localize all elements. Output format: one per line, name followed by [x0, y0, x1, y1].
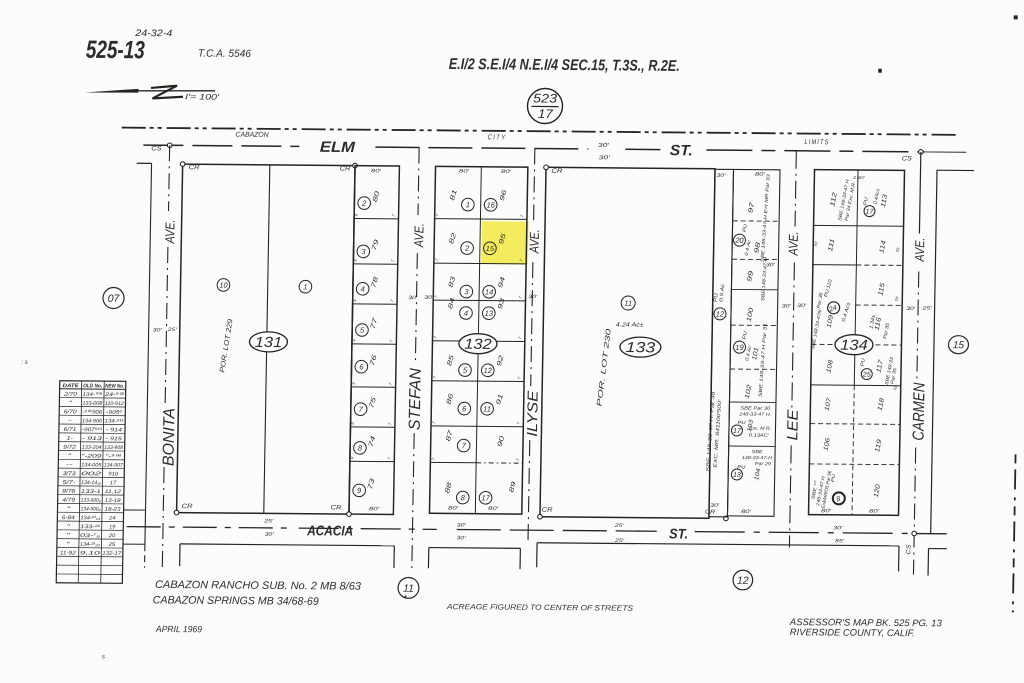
svg-text:107: 107	[824, 397, 833, 411]
svg-text:134-14₁₆: 134-14₁₆	[81, 480, 102, 486]
svg-text:PU: PU	[741, 330, 749, 340]
svg-text:134-907: 134-907	[104, 463, 124, 469]
svg-text:523: 523	[533, 91, 557, 105]
svg-text:525-13: 525-13	[86, 36, 146, 65]
svg-text:7: 7	[391, 213, 397, 217]
svg-text:CR: CR	[551, 168, 562, 175]
svg-text:132: 132	[464, 337, 492, 353]
svg-text:11,12: 11,12	[105, 489, 121, 495]
svg-text:0.4 Ac±: 0.4 Ac±	[841, 301, 852, 322]
svg-text:80′: 80′	[488, 506, 500, 512]
svg-text:″: ″	[67, 524, 72, 530]
svg-text:81: 81	[449, 188, 459, 201]
svg-text:148-33-47 H.: 148-33-47 H.	[739, 411, 771, 416]
svg-text:78: 78	[370, 276, 380, 289]
svg-text:8/78: 8/78	[62, 489, 75, 495]
svg-text:CR: CR	[705, 510, 716, 516]
svg-text:134-⁹¹¹: 134-⁹¹¹	[104, 418, 123, 424]
svg-text:2/70: 2/70	[63, 392, 77, 398]
svg-text:87: 87	[445, 429, 455, 442]
svg-text:80′: 80′	[755, 172, 767, 178]
svg-text:106: 106	[823, 437, 832, 451]
svg-text:ACREAGE FIGURED TO CENTER: ACREAGE FIGURED TO CENTER OF STREETS	[446, 602, 633, 613]
svg-text:86: 86	[445, 392, 455, 405]
svg-text:25′: 25′	[613, 523, 625, 529]
svg-text:80′: 80′	[369, 506, 381, 512]
svg-text:25′: 25′	[166, 327, 178, 333]
svg-text:ST.: ST.	[669, 525, 688, 541]
svg-text:93: 93	[497, 297, 507, 310]
svg-text:CITY: CITY	[487, 134, 506, 141]
svg-text:114: 114	[879, 239, 888, 254]
svg-text:96: 96	[499, 189, 509, 202]
svg-text:SBE 148-33-47-H E×t MR Par: SBE 148-33-47-H E×t MR Par 33	[760, 173, 771, 262]
svg-text:132-17: 132-17	[102, 551, 122, 557]
svg-text:24: 24	[108, 516, 116, 522]
svg-text:4: 4	[361, 284, 365, 293]
svg-text:133-1: 133-1	[81, 489, 101, 495]
svg-text:7: 7	[517, 336, 523, 340]
svg-text:117: 117	[875, 359, 884, 374]
svg-text:1: 1	[303, 282, 307, 291]
svg-text:112: 112	[829, 192, 839, 208]
svg-text:116: 116	[874, 316, 883, 331]
svg-text:80′: 80′	[371, 168, 383, 174]
svg-text:134-906: 134-906	[82, 418, 102, 424]
svg-text:17: 17	[110, 480, 118, 486]
svg-text:7: 7	[462, 441, 467, 450]
svg-text:30′: 30′	[710, 503, 721, 509]
svg-text:133: 133	[625, 340, 655, 356]
svg-text:6/71: 6/71	[63, 427, 76, 433]
svg-text:30′: 30′	[456, 535, 467, 541]
svg-text:83: 83	[447, 275, 457, 288]
svg-text:119: 119	[874, 438, 883, 453]
svg-text:17: 17	[481, 493, 490, 502]
svg-text:30′: 30′	[782, 303, 793, 309]
svg-text:97: 97	[747, 201, 756, 214]
svg-text:7: 7	[389, 298, 395, 302]
svg-text:SBE 148-33-47 H Par 31: SBE 148-33-47 H Par 31	[758, 322, 768, 397]
svg-text:102: 102	[744, 384, 754, 400]
svg-text:82: 82	[448, 232, 458, 245]
svg-text:80′: 80′	[459, 169, 471, 175]
svg-text:7: 7	[519, 214, 525, 218]
svg-text:30′: 30′	[906, 306, 917, 312]
svg-text:15: 15	[486, 244, 495, 253]
svg-text:115: 115	[877, 282, 886, 297]
svg-text:CR: CR	[331, 504, 342, 511]
svg-text:CR: CR	[339, 165, 350, 172]
svg-text:100: 100	[746, 307, 756, 323]
svg-text:110-912: 110-912	[105, 401, 124, 407]
svg-text:70′: 70′	[813, 241, 819, 248]
svg-text:910: 910	[108, 471, 118, 477]
svg-text:12: 12	[484, 366, 493, 375]
svg-text:30′: 30′	[408, 295, 419, 301]
svg-text:133-¹⁸: 133-¹⁸	[80, 524, 101, 530]
svg-text:11: 11	[624, 299, 632, 308]
svg-text:: s: : s	[21, 360, 27, 366]
svg-text:T.C.A. 5546: T.C.A. 5546	[198, 48, 251, 60]
svg-text:133-900₉: 133-900₉	[81, 498, 101, 504]
svg-text:ILYSE: ILYSE	[525, 390, 542, 437]
svg-text:109: 109	[826, 314, 835, 328]
svg-text:25: 25	[108, 542, 116, 548]
svg-text:92: 92	[496, 354, 506, 367]
svg-text:7: 7	[515, 421, 521, 425]
svg-text:0.5 Ac: 0.5 Ac	[718, 283, 726, 302]
svg-text:15: 15	[953, 340, 965, 351]
svg-text:″: ″	[69, 401, 74, 407]
svg-text:80′: 80′	[741, 509, 753, 515]
svg-text:3: 3	[464, 287, 469, 296]
svg-text:148-33-47-H: 148-33-47-H	[742, 455, 773, 460]
svg-text:AVE.: AVE.	[912, 237, 927, 262]
svg-text:85: 85	[446, 354, 456, 367]
svg-text:CABAZON RANCHO SUB. No. 2: CABAZON RANCHO SUB. No. 2 MB 8/63	[155, 579, 361, 593]
svg-text:11: 11	[403, 583, 414, 595]
svg-text:17: 17	[733, 428, 742, 435]
svg-text:13: 13	[733, 472, 741, 479]
svg-text:94: 94	[497, 276, 507, 289]
svg-text:-⁹⁰⁵906: -⁹⁰⁵906	[82, 409, 102, 415]
svg-text:6/70: 6/70	[64, 409, 77, 415]
svg-text:8: 8	[461, 493, 466, 502]
svg-text:134-005: 134-005	[81, 462, 101, 468]
svg-text:120: 120	[873, 483, 882, 497]
svg-text:25′: 25′	[921, 306, 933, 312]
svg-text:SBE: SBE	[752, 449, 764, 454]
svg-text:30′: 30′	[766, 262, 777, 268]
svg-text:16: 16	[486, 200, 495, 209]
svg-text:ACACIA: ACACIA	[306, 522, 353, 538]
svg-text:5/7-: 5/7-	[63, 480, 76, 486]
svg-text:17: 17	[538, 107, 554, 121]
svg-text:CABAZON: CABAZON	[236, 132, 270, 139]
svg-text:20: 20	[108, 533, 116, 539]
svg-text:CARMEN: CARMEN	[911, 382, 929, 441]
svg-text:CS: CS	[906, 544, 912, 554]
svg-text:7: 7	[388, 381, 394, 385]
svg-text:118: 118	[877, 397, 886, 412]
svg-text:12: 12	[737, 575, 749, 587]
svg-text:I′= 100′: I′= 100′	[185, 92, 220, 101]
svg-text:9/72: 9/72	[63, 445, 76, 451]
svg-text:PU: PU	[742, 223, 750, 233]
svg-text:SBE Par 30: SBE Par 30	[740, 405, 771, 410]
svg-text:133-908: 133-908	[104, 445, 123, 451]
svg-text:7: 7	[387, 421, 393, 425]
svg-text:30′: 30′	[716, 173, 727, 179]
svg-text:- 914: - 914	[106, 427, 122, 433]
svg-text:ELM: ELM	[320, 139, 356, 156]
svg-text:″-⁹⁰⁴: ″-⁹⁰⁴	[105, 454, 121, 460]
svg-text:~: ~	[68, 418, 71, 424]
svg-text:8: 8	[836, 496, 842, 504]
svg-text:14: 14	[485, 287, 494, 296]
svg-text:CS: CS	[902, 155, 913, 162]
svg-text:30′: 30′	[797, 303, 808, 309]
svg-text:AVE.: AVE.	[527, 229, 542, 254]
svg-text:90: 90	[496, 435, 506, 448]
svg-text:9,10: 9,10	[80, 551, 100, 557]
svg-text:13: 13	[485, 309, 494, 318]
svg-text:9: 9	[357, 486, 362, 495]
svg-text:OLD No.: OLD No.	[83, 383, 102, 389]
svg-text:1: 1	[466, 200, 470, 209]
svg-text:25′: 25′	[263, 518, 275, 524]
svg-text:30′: 30′	[598, 143, 611, 149]
svg-text:LIMITS: LIMITS	[804, 139, 829, 146]
svg-text:1-: 1-	[66, 436, 73, 442]
svg-text:133-204: 133-204	[82, 445, 102, 451]
svg-text:74: 74	[367, 435, 377, 448]
svg-text:77: 77	[369, 317, 379, 330]
svg-text:7: 7	[358, 405, 363, 414]
svg-text:80′: 80′	[821, 508, 833, 514]
svg-text:Par 35: Par 35	[882, 322, 891, 339]
svg-text:POR. LOT 230: POR. LOT 230	[596, 328, 612, 406]
svg-text:5: 5	[360, 326, 365, 335]
svg-text:85′: 85′	[835, 538, 846, 544]
svg-text:10: 10	[219, 281, 228, 290]
svg-text:0.13AC′: 0.13AC′	[749, 433, 769, 438]
svg-text:25: 25	[862, 372, 871, 379]
svg-text:133-008: 133-008	[82, 401, 102, 407]
svg-text:134-⁰⁰⁴: 134-⁰⁰⁴	[82, 392, 102, 398]
svg-text:134-²³₂₄: 134-²³₂₄	[80, 515, 100, 521]
svg-text:5: 5	[463, 366, 468, 375]
svg-text:11: 11	[483, 404, 491, 413]
svg-text:30′: 30′	[528, 294, 539, 300]
svg-text:134-900₉: 134-900₉	[80, 506, 100, 512]
svg-text:75: 75	[368, 396, 378, 409]
svg-text:″: ″	[66, 533, 71, 539]
svg-text:POR. LOT 229: POR. LOT 229	[219, 318, 234, 373]
svg-text:-907⁹¹³: -907⁹¹³	[82, 427, 102, 433]
svg-text:11-92: 11-92	[60, 550, 76, 556]
svg-text:ST.: ST.	[670, 142, 693, 159]
svg-text:19: 19	[735, 343, 744, 352]
svg-text:CS: CS	[151, 145, 162, 152]
svg-text:113: 113	[880, 193, 889, 208]
svg-text:2: 2	[464, 244, 470, 253]
svg-text:89: 89	[508, 480, 518, 493]
svg-text:13-18: 13-18	[105, 498, 121, 504]
svg-text:7: 7	[386, 456, 392, 460]
svg-text:7: 7	[390, 258, 396, 262]
svg-text:6: 6	[359, 362, 364, 371]
svg-text:CR: CR	[188, 164, 199, 171]
svg-text:80′: 80′	[501, 169, 513, 175]
svg-text:″: ″	[66, 542, 71, 548]
svg-text:7: 7	[515, 457, 521, 461]
svg-text:30′: 30′	[833, 525, 844, 531]
svg-text:03-⁷₈: 03-⁷₈	[80, 533, 102, 539]
svg-text:101: 101	[751, 346, 760, 360]
svg-text:24-⁹⁰²: 24-⁹⁰²	[104, 392, 125, 398]
svg-text:70′: 70′	[895, 247, 901, 254]
svg-text:3/73: 3/73	[63, 471, 76, 477]
svg-text:CR: CR	[541, 507, 552, 514]
svg-text:80′: 80′	[448, 505, 460, 511]
svg-text:6: 6	[462, 404, 467, 413]
svg-text:PU 110: PU 110	[823, 279, 834, 298]
svg-text:91: 91	[495, 393, 505, 406]
svg-text:--: --	[66, 462, 73, 468]
svg-text:- 913: - 913	[82, 436, 102, 442]
svg-text:30′: 30′	[265, 532, 276, 538]
svg-text:30′: 30′	[599, 155, 612, 161]
svg-text:″: ″	[67, 506, 72, 512]
svg-text:DATE: DATE	[63, 383, 80, 389]
svg-text:70′: 70′	[894, 296, 900, 303]
svg-text:73: 73	[367, 477, 377, 490]
svg-text:CABAZON SPRINGS MB 34/68-69: CABAZON SPRINGS MB 34/68-69	[153, 594, 319, 607]
svg-text:BONITA: BONITA	[160, 408, 178, 466]
svg-text:2: 2	[361, 199, 367, 208]
svg-text:STEFAN: STEFAN	[407, 368, 425, 431]
svg-text:111: 111	[827, 238, 836, 253]
svg-text:AVE.: AVE.	[411, 223, 426, 248]
svg-text:″: ″	[68, 453, 73, 459]
svg-text:Par 29: Par 29	[755, 461, 772, 466]
svg-text:NEW No.: NEW No.	[105, 383, 124, 389]
svg-text:18-23: 18-23	[104, 507, 120, 513]
svg-text:7: 7	[516, 376, 522, 380]
svg-text:19: 19	[109, 524, 116, 530]
svg-text:AVE.: AVE.	[162, 219, 177, 244]
svg-text:8: 8	[358, 444, 363, 453]
svg-text:134: 134	[840, 338, 868, 354]
svg-text:30′: 30′	[457, 523, 468, 529]
svg-text:CR: CR	[182, 503, 193, 510]
svg-text:20: 20	[734, 236, 744, 245]
svg-text:76: 76	[369, 354, 379, 367]
svg-text:84: 84	[447, 297, 457, 310]
svg-text:PU: PU	[859, 357, 867, 367]
svg-text:4: 4	[464, 309, 468, 318]
svg-text:88: 88	[444, 481, 454, 494]
svg-text:17: 17	[866, 209, 875, 216]
svg-text:002: 002	[81, 471, 101, 477]
svg-text:7: 7	[518, 295, 524, 299]
svg-text:AVE.: AVE.	[786, 231, 801, 256]
svg-text:6-84: 6-84	[62, 515, 75, 521]
svg-text:80′: 80′	[869, 509, 881, 515]
svg-text:E.I/2 S.E.I/4 N.E.I/4 SEC.15,: E.I/2 S.E.I/4 N.E.I/4 SEC.15, T.3S., R.2…	[449, 56, 680, 75]
svg-text:07: 07	[108, 293, 121, 305]
svg-text:-905⁶: -905⁶	[106, 410, 122, 416]
svg-text:12: 12	[716, 309, 725, 318]
svg-text:134-¹⁹₂₀: 134-¹⁹₂₀	[80, 542, 101, 548]
svg-text:80: 80	[372, 190, 382, 203]
svg-text:150′: 150′	[853, 175, 865, 180]
svg-text:104: 104	[754, 467, 762, 481]
svg-text:108: 108	[825, 359, 834, 373]
svg-text:APRIL 1969: APRIL 1969	[155, 624, 202, 634]
svg-text:LEE: LEE	[784, 408, 802, 440]
svg-text:99: 99	[746, 270, 755, 283]
svg-text:7: 7	[388, 338, 394, 342]
svg-text:79: 79	[371, 238, 381, 251]
svg-text:4/79: 4/79	[62, 497, 75, 503]
svg-text:s: s	[102, 654, 105, 660]
svg-text:4.24 Ac±: 4.24 Ac±	[616, 322, 645, 328]
svg-text:Par 36: Par 36	[816, 292, 825, 309]
svg-text:PU: PU	[862, 196, 870, 206]
svg-text:- 915: - 915	[106, 436, 122, 442]
svg-text:30′: 30′	[153, 327, 164, 333]
svg-text:RIVERSIDE COUNTY, CALIF.: RIVERSIDE COUNTY, CALIF.	[790, 627, 915, 639]
svg-text:131: 131	[255, 335, 283, 351]
svg-text:3: 3	[361, 247, 366, 256]
svg-text:″-209: ″-209	[81, 454, 101, 460]
